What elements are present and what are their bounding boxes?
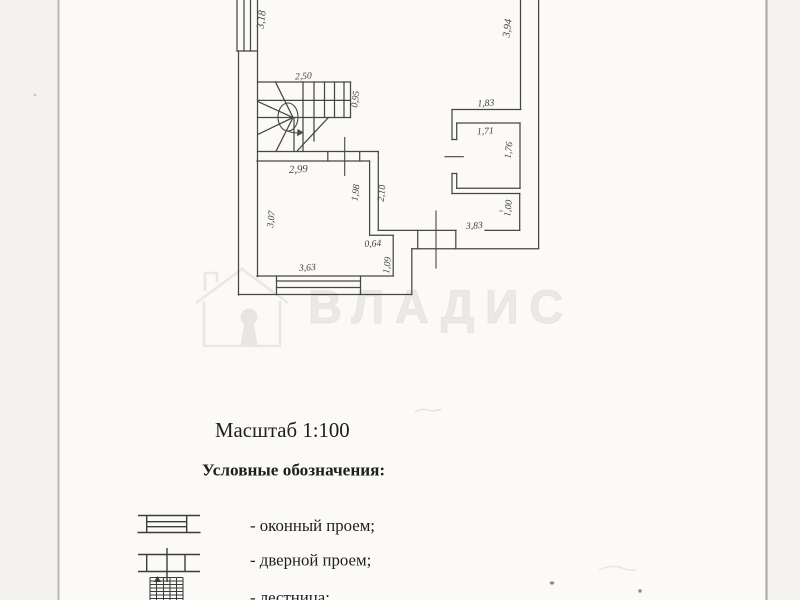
svg-text:- оконный проем;: - оконный проем; — [250, 516, 375, 535]
svg-text:2,99: 2,99 — [289, 163, 309, 176]
svg-text:1,83: 1,83 — [477, 98, 495, 110]
svg-text:Масштаб 1:100: Масштаб 1:100 — [215, 419, 350, 442]
svg-text:3,07: 3,07 — [265, 209, 278, 229]
svg-text:0,64: 0,64 — [364, 238, 382, 250]
svg-text:1,09: 1,09 — [381, 256, 394, 274]
svg-text:0,95: 0,95 — [349, 90, 362, 108]
svg-text:1,71: 1,71 — [477, 126, 494, 138]
svg-text:1,00: 1,00 — [502, 199, 515, 217]
svg-text:2,50: 2,50 — [295, 71, 313, 83]
svg-text:Условные обозначения:: Условные обозначения: — [202, 461, 385, 480]
svg-text:3,63: 3,63 — [298, 262, 317, 274]
svg-text:2,10: 2,10 — [376, 184, 389, 202]
svg-text:1,98: 1,98 — [350, 183, 363, 201]
svg-text:- дверной проем;: - дверной проем; — [250, 551, 371, 570]
svg-text:1,76: 1,76 — [503, 141, 516, 159]
svg-text:- лестница;: - лестница; — [250, 588, 330, 600]
svg-text:3,83: 3,83 — [465, 220, 484, 232]
